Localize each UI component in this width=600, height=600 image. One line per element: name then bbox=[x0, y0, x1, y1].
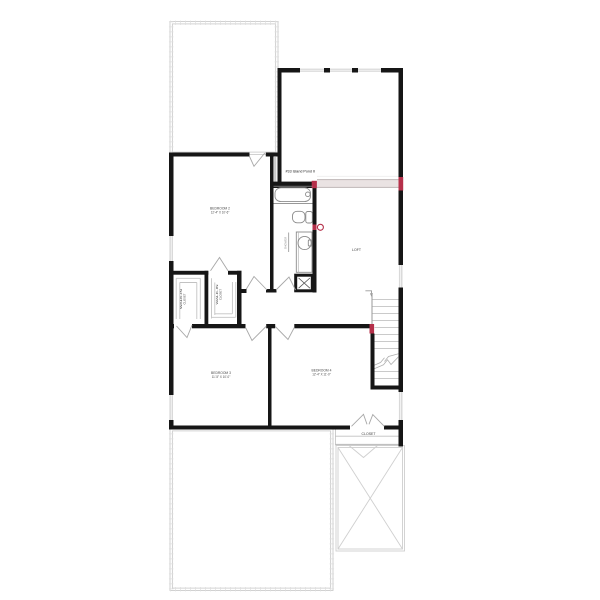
svg-text:12'-4" X 11'-0": 12'-4" X 11'-0" bbox=[312, 373, 331, 377]
svg-text:SHOWER: SHOWER bbox=[284, 237, 288, 250]
svg-text:CLOSET: CLOSET bbox=[183, 293, 187, 304]
svg-text:12'-4" X 10'-6": 12'-4" X 10'-6" bbox=[211, 211, 230, 215]
svg-text:CLOSET: CLOSET bbox=[219, 289, 223, 300]
svg-text:11'-5" X 10'-0": 11'-5" X 10'-0" bbox=[212, 375, 231, 379]
svg-text:#33 Island Pond II: #33 Island Pond II bbox=[286, 169, 316, 174]
svg-text:LOFT: LOFT bbox=[352, 248, 362, 252]
svg-text:CLOSET: CLOSET bbox=[362, 432, 376, 436]
